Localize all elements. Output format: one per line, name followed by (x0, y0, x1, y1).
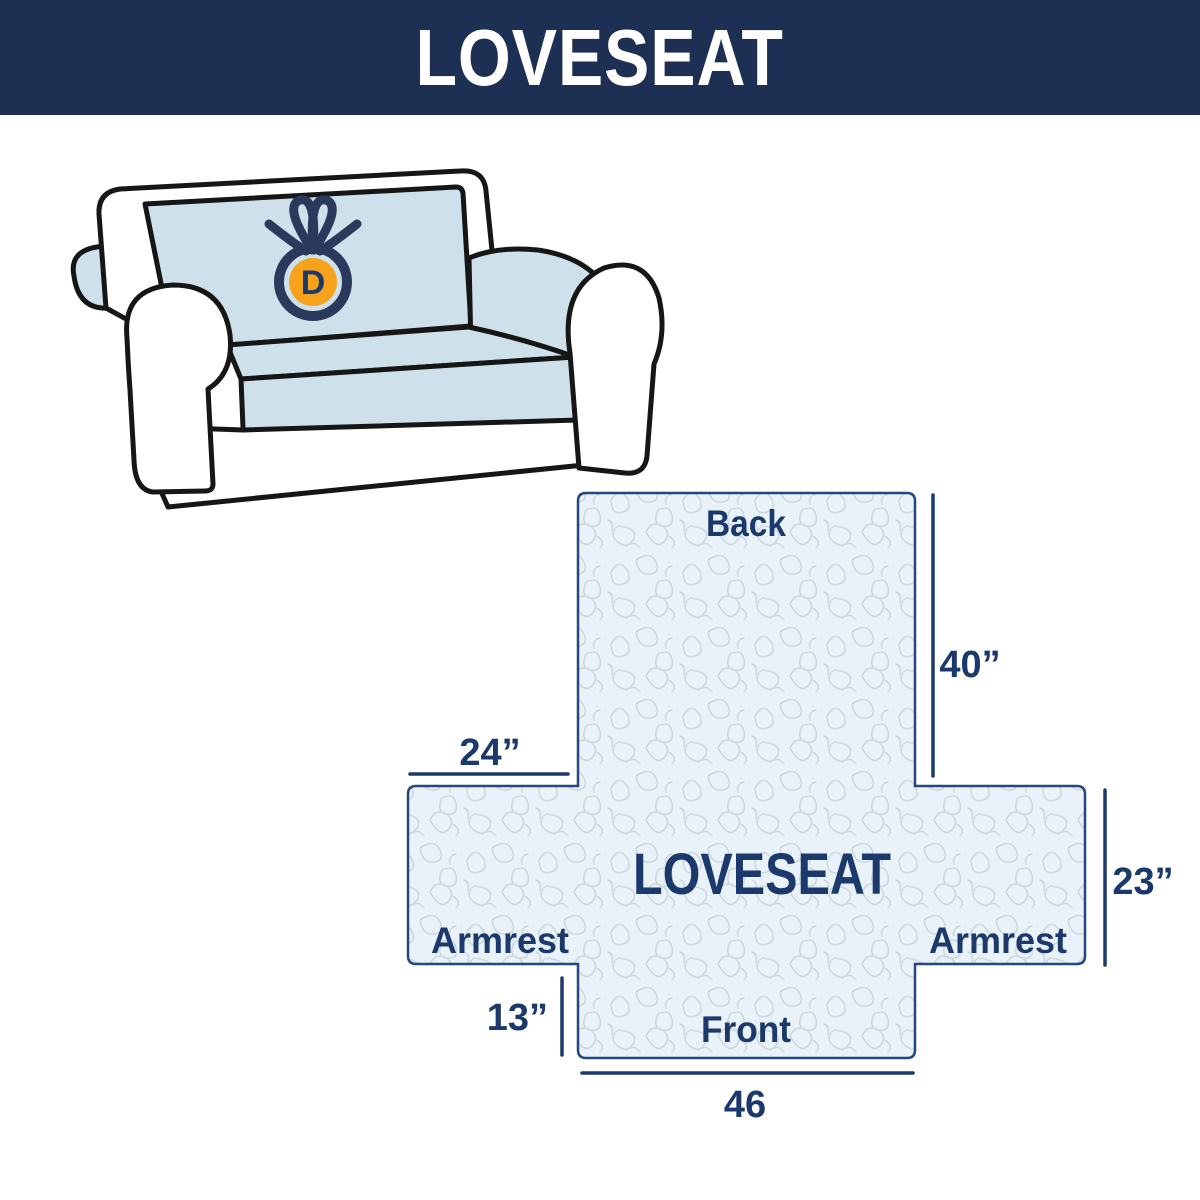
center-label: LOVESEAT (633, 842, 891, 907)
header-banner: LOVESEAT (0, 0, 1200, 115)
armrest-top-width-value: 24” (459, 732, 520, 774)
front-flap-height-value: 13” (487, 997, 548, 1039)
page-title: LOVESEAT (416, 18, 784, 98)
back-height-value: 40” (939, 644, 1000, 686)
right-arm-roll (568, 265, 662, 473)
front-width-value: 46 (724, 1084, 766, 1126)
armrest-side-height-value: 23” (1112, 861, 1173, 903)
logo-letter: D (301, 264, 326, 302)
sofa-drawing: D (70, 158, 670, 528)
armrest-right-label: Armrest (929, 920, 1067, 961)
page: LOVESEAT (0, 0, 1200, 1200)
diagram-drawing: Back LOVESEAT Armrest Armrest Front 40” … (390, 480, 1200, 1140)
sofa-illustration: D (70, 158, 670, 528)
armrest-left-label: Armrest (431, 920, 569, 961)
cover-diagram: Back LOVESEAT Armrest Armrest Front 40” … (390, 480, 1200, 1140)
front-label: Front (701, 1009, 791, 1050)
back-label: Back (706, 503, 786, 544)
